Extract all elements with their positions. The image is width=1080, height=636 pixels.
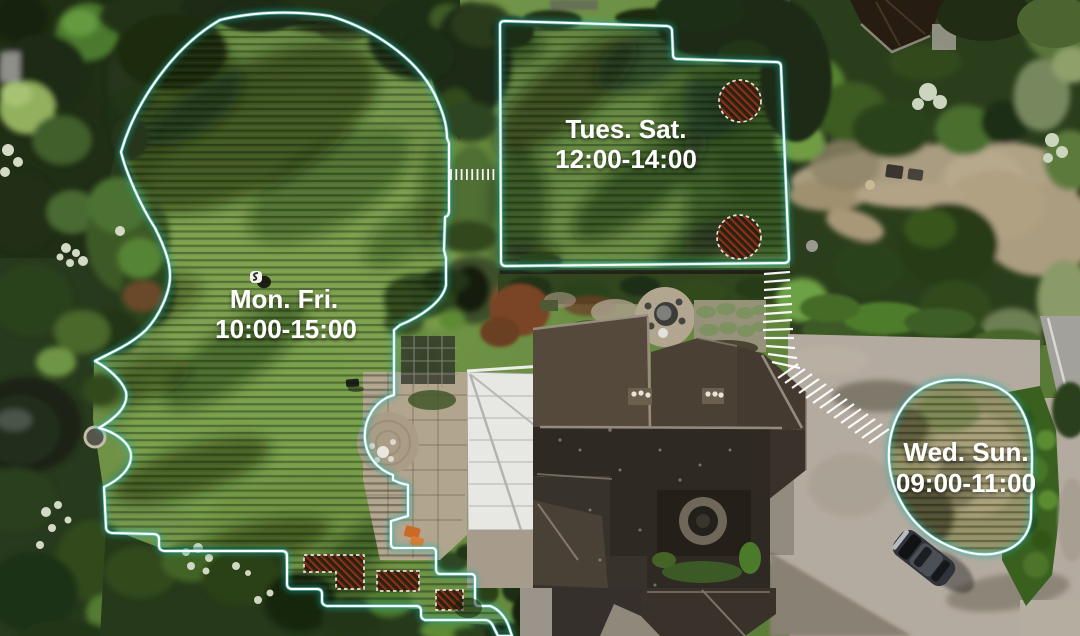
svg-text:12:00-14:00: 12:00-14:00 [555,144,697,174]
svg-text:09:00-11:00: 09:00-11:00 [896,468,1036,498]
svg-text:Wed. Sun.: Wed. Sun. [903,437,1028,467]
svg-text:10:00-15:00: 10:00-15:00 [215,314,357,344]
svg-text:Tues. Sat.: Tues. Sat. [566,114,687,144]
svg-text:Mon. Fri.: Mon. Fri. [230,284,338,314]
